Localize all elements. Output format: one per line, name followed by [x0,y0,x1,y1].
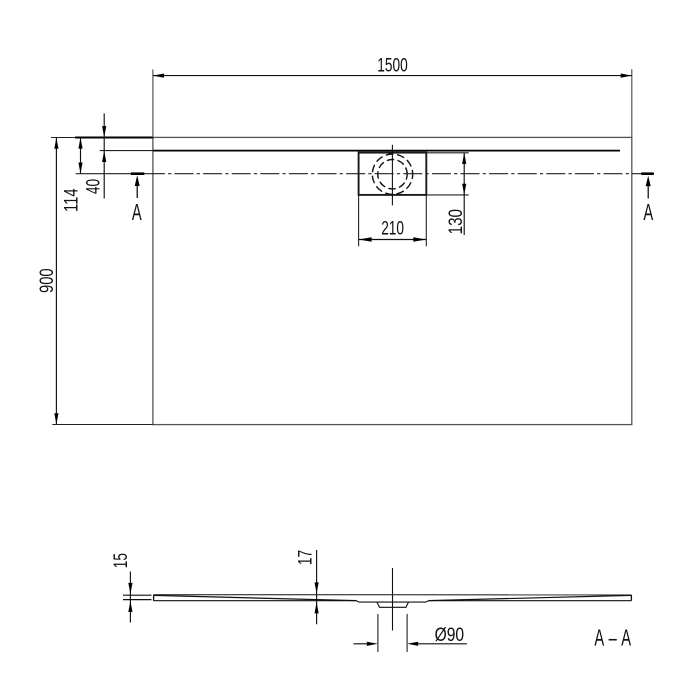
svg-text:114: 114 [61,188,82,212]
svg-text:Ø90: Ø90 [435,624,465,646]
svg-text:15: 15 [110,553,132,568]
svg-text:A: A [643,201,653,226]
svg-text:A: A [132,201,142,226]
svg-text:210: 210 [381,217,404,239]
svg-text:900: 900 [36,268,57,293]
svg-text:1500: 1500 [377,54,407,76]
svg-text:17: 17 [294,550,316,565]
svg-text:130: 130 [444,209,466,234]
svg-text:A – A: A – A [594,626,631,651]
svg-text:40: 40 [82,179,104,194]
